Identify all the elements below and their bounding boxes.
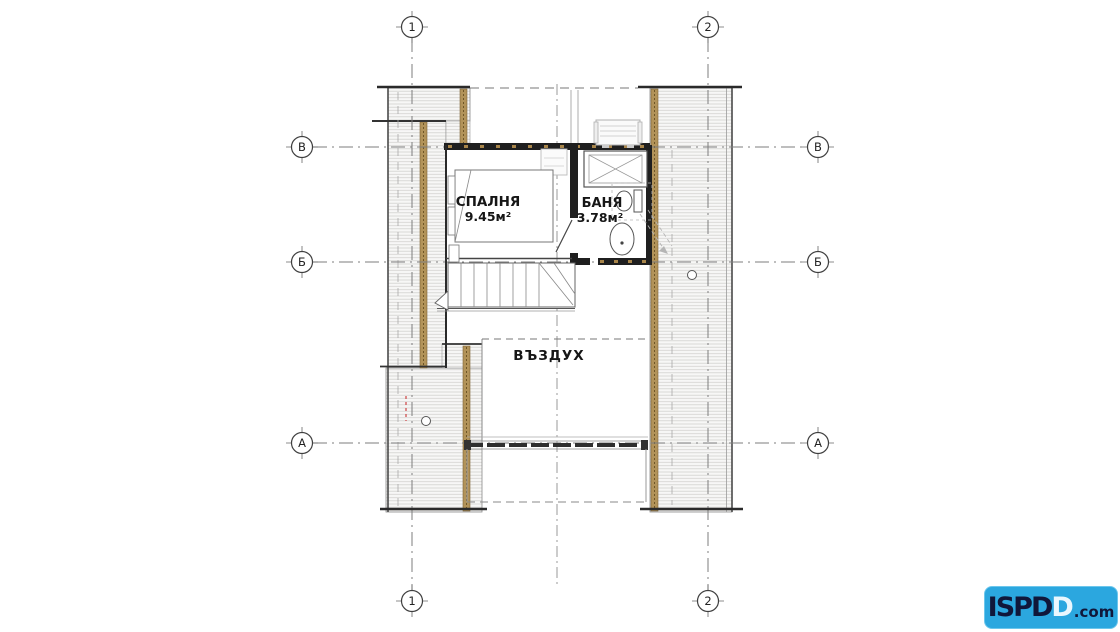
axis-markers [286, 11, 834, 617]
axis-right-a: А [814, 436, 822, 450]
floor-plan-drawing: 1 2 1 2 В Б А В Б А СПАЛНЯ 9.45м² БАНЯ 3… [0, 0, 1120, 632]
railing-band [464, 437, 648, 502]
axis-bottom-2: 2 [704, 594, 711, 608]
axis-top-2: 2 [704, 20, 711, 34]
axis-left-v: В [298, 140, 306, 154]
void-label: ВЪЗДУХ [513, 348, 584, 364]
logo-text-suffix: .com [1074, 603, 1115, 621]
axis-top-1: 1 [408, 20, 415, 34]
logo-text-solid: ISPD [988, 594, 1052, 621]
axis-right-b: Б [814, 255, 822, 269]
bathroom-label: БАНЯ [582, 196, 623, 211]
stairs [435, 263, 575, 311]
axis-bottom-1: 1 [408, 594, 415, 608]
bedroom-area: 9.45м² [465, 209, 512, 224]
shower [584, 151, 647, 187]
bedroom-label: СПАЛНЯ [456, 194, 521, 210]
floor-plan-canvas: 1 2 1 2 В Б А В Б А СПАЛНЯ 9.45м² БАНЯ 3… [0, 0, 1120, 632]
axis-right-v: В [814, 140, 822, 154]
ac-unit [594, 120, 642, 148]
logo-text-outline: D [1051, 594, 1072, 621]
axis-left-b: Б [298, 255, 306, 269]
bathroom-area: 3.78м² [577, 210, 624, 225]
logo-ispdd: ISPDD.com [984, 586, 1118, 629]
axis-left-a: А [298, 436, 306, 450]
right-roof-band [650, 88, 732, 512]
